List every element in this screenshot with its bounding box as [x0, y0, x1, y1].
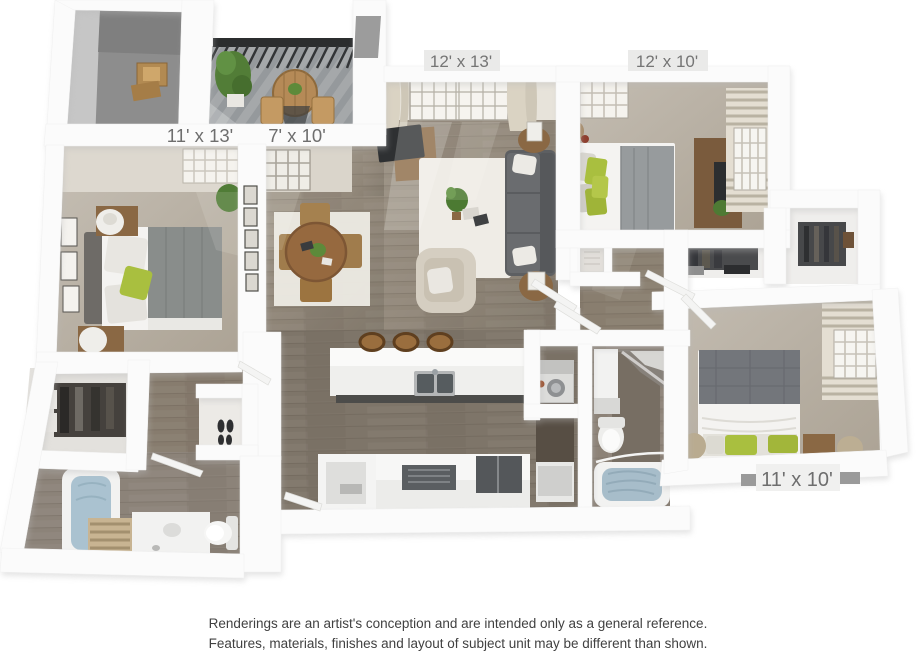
svg-text:7' x 10': 7' x 10' — [268, 125, 325, 146]
svg-text:Renderings are an artist's con: Renderings are an artist's conception an… — [209, 616, 708, 631]
svg-text:11' x 13': 11' x 13' — [167, 125, 233, 146]
svg-text:11' x 10': 11' x 10' — [761, 469, 833, 491]
svg-text:12' x 10': 12' x 10' — [636, 52, 698, 71]
svg-text:Features, materials, finishes: Features, materials, finishes and layout… — [209, 636, 708, 651]
svg-text:12' x 13': 12' x 13' — [430, 52, 492, 71]
